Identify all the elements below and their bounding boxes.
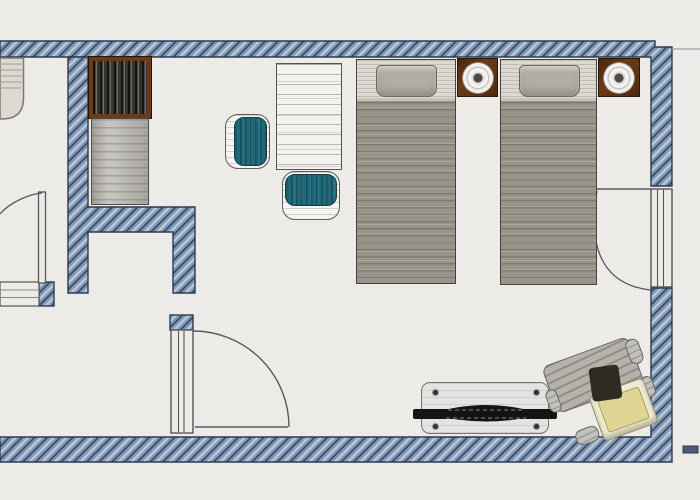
bed-right [500,59,597,285]
wardrobe [89,57,151,118]
screw-icon [432,389,439,396]
chair-bottom-seat [285,174,337,206]
lamp-icon [462,62,494,94]
wall-dash [683,446,698,453]
entry-door-leaf [171,330,193,433]
wall-counter-stub [39,282,54,306]
chair-left-seat [234,117,267,166]
bathroom-door-arc [0,193,42,214]
lamp-icon [603,62,635,94]
luggage-bench-straps [422,383,550,435]
bed-left [356,59,456,284]
armchair-armrest [573,424,601,447]
bed-left-pillow [376,65,437,97]
chair-bottom [282,171,340,220]
screw-icon [533,423,540,430]
chair-left [225,114,270,169]
window-frame [651,189,672,287]
nightstand-left [457,58,498,97]
floor-plan-canvas [0,0,700,500]
balcony-door-arc [594,191,650,290]
counter-ledge [0,282,39,306]
screw-icon [432,423,439,430]
luggage-bench [421,382,549,434]
bed-right-pillow [519,65,580,97]
bathroom-door-leaf [39,192,46,283]
armchair-throw-pillow [588,364,622,402]
desk [276,63,342,170]
screw-icon [533,389,540,396]
nightstand-right [598,58,640,97]
wall-door-stub [170,315,193,330]
entry-door-arc [193,331,289,427]
dresser [91,118,149,205]
